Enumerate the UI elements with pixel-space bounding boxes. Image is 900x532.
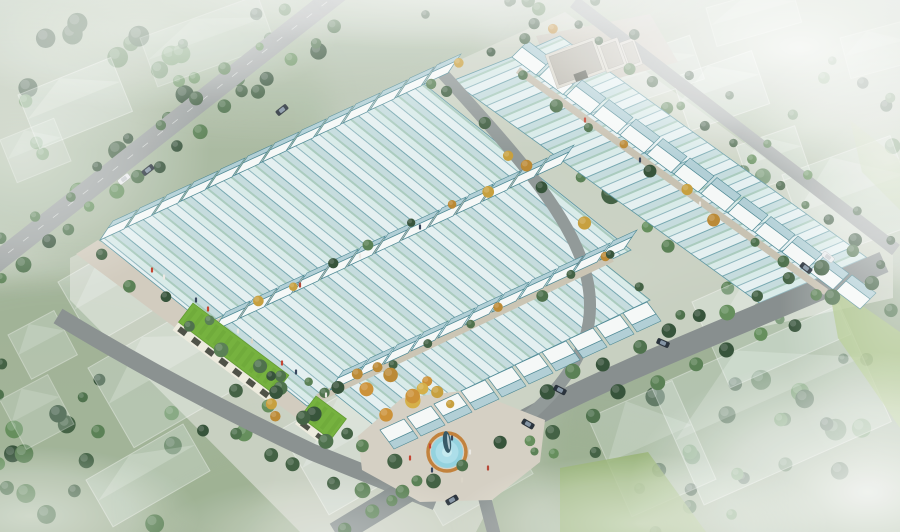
- aerial-render-canvas: [0, 0, 900, 532]
- fog-layer: [0, 0, 900, 532]
- greenhouse-aerial-rendering: [0, 0, 900, 532]
- global-haze: [0, 0, 900, 532]
